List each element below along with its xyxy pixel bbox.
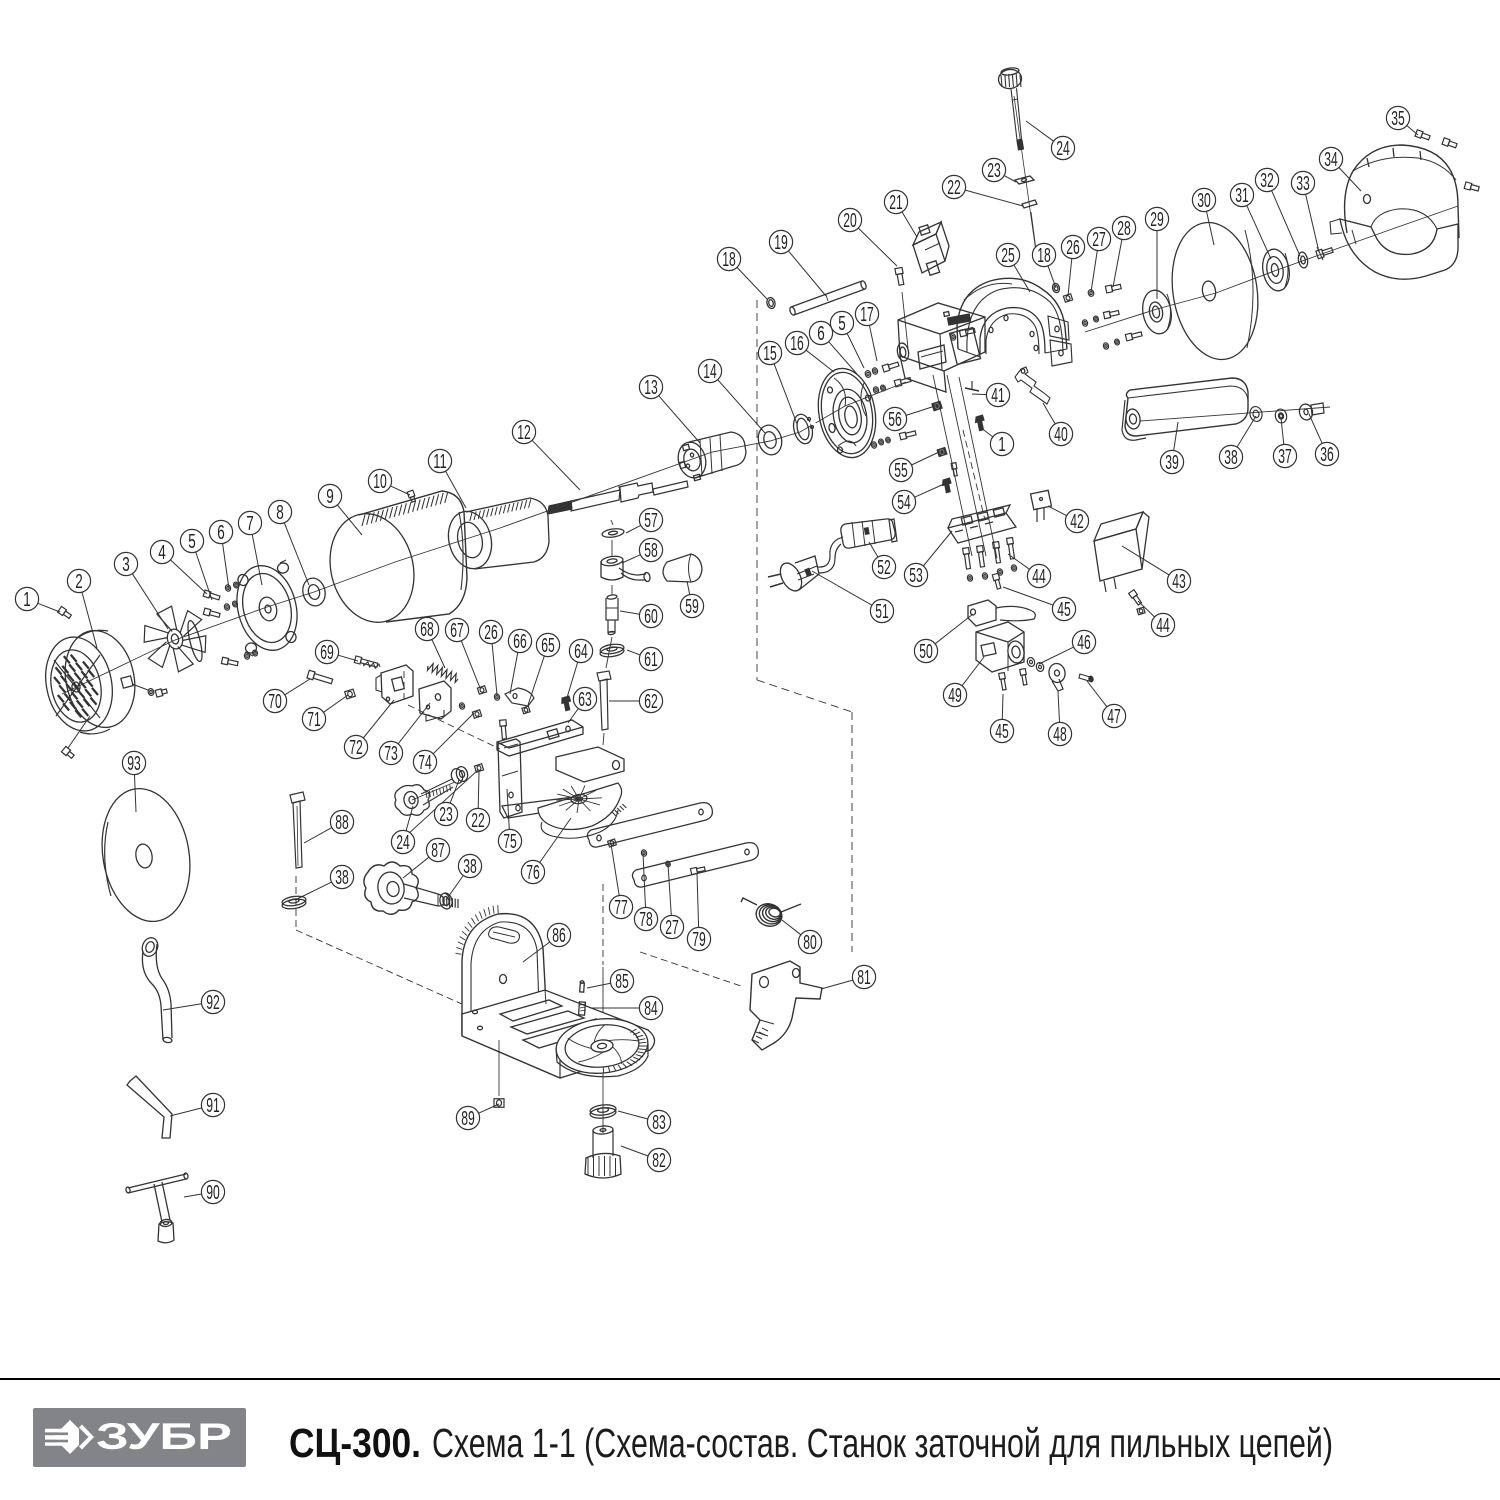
svg-text:89: 89 (461, 1108, 475, 1130)
svg-text:45: 45 (1057, 599, 1071, 621)
svg-text:37: 37 (1278, 446, 1292, 468)
svg-text:43: 43 (1172, 571, 1186, 593)
svg-text:90: 90 (206, 1182, 220, 1204)
svg-text:21: 21 (889, 192, 903, 214)
svg-text:36: 36 (1320, 444, 1334, 466)
svg-text:88: 88 (335, 812, 349, 834)
svg-text:СЦ-300.: СЦ-300. (289, 1420, 421, 1466)
svg-text:26: 26 (1066, 237, 1080, 259)
svg-text:23: 23 (987, 160, 1001, 182)
svg-text:11: 11 (433, 451, 447, 473)
svg-text:24: 24 (396, 832, 410, 854)
svg-text:93: 93 (127, 753, 141, 775)
svg-text:48: 48 (1053, 724, 1067, 746)
svg-text:58: 58 (644, 540, 658, 562)
svg-text:85: 85 (615, 971, 629, 993)
svg-text:64: 64 (574, 641, 588, 663)
svg-text:44: 44 (1032, 566, 1046, 588)
svg-text:5: 5 (188, 531, 196, 553)
svg-text:69: 69 (320, 642, 334, 664)
svg-text:6: 6 (217, 522, 225, 544)
svg-text:3: 3 (122, 554, 130, 576)
svg-text:70: 70 (268, 691, 282, 713)
svg-text:38: 38 (335, 867, 349, 889)
svg-text:26: 26 (484, 622, 498, 644)
svg-text:63: 63 (578, 689, 592, 711)
svg-text:5: 5 (838, 313, 846, 335)
svg-text:62: 62 (644, 691, 658, 713)
svg-text:2: 2 (75, 571, 83, 593)
svg-text:ЗУБР: ЗУБР (96, 1416, 232, 1457)
svg-text:91: 91 (206, 1095, 220, 1117)
svg-text:4: 4 (158, 542, 166, 564)
svg-text:65: 65 (541, 635, 555, 657)
svg-text:49: 49 (948, 685, 962, 707)
svg-text:13: 13 (644, 377, 658, 399)
svg-text:18: 18 (722, 249, 736, 271)
svg-text:24: 24 (1056, 138, 1070, 160)
svg-text:31: 31 (1235, 185, 1249, 207)
svg-text:12: 12 (517, 422, 531, 444)
svg-text:83: 83 (652, 1112, 666, 1134)
svg-text:32: 32 (1260, 170, 1274, 192)
svg-text:66: 66 (513, 631, 527, 653)
svg-text:14: 14 (703, 361, 717, 383)
svg-text:15: 15 (763, 343, 777, 365)
svg-text:1: 1 (998, 434, 1006, 456)
svg-text:17: 17 (860, 304, 874, 326)
svg-text:33: 33 (1296, 173, 1310, 195)
svg-text:68: 68 (420, 619, 434, 641)
svg-text:56: 56 (888, 409, 902, 431)
svg-text:67: 67 (450, 620, 464, 642)
svg-text:40: 40 (1054, 424, 1068, 446)
svg-text:42: 42 (1070, 511, 1084, 533)
svg-text:28: 28 (1117, 218, 1131, 240)
svg-text:Схема 1-1 (Схема-состав. Стано: Схема 1-1 (Схема-состав. Станок заточной… (432, 1420, 1333, 1466)
svg-text:1: 1 (23, 589, 31, 611)
svg-text:54: 54 (897, 492, 911, 514)
svg-text:16: 16 (790, 333, 804, 355)
svg-text:86: 86 (552, 925, 566, 947)
svg-text:9: 9 (326, 486, 334, 508)
svg-text:22: 22 (947, 177, 961, 199)
svg-text:52: 52 (877, 557, 891, 579)
svg-text:20: 20 (843, 210, 857, 232)
svg-text:57: 57 (644, 510, 658, 532)
svg-text:79: 79 (692, 929, 706, 951)
svg-text:41: 41 (991, 385, 1005, 407)
svg-text:59: 59 (685, 596, 699, 618)
svg-text:46: 46 (1077, 632, 1091, 654)
svg-text:74: 74 (418, 752, 432, 774)
svg-text:80: 80 (803, 932, 817, 954)
svg-text:87: 87 (431, 840, 445, 862)
svg-text:19: 19 (774, 232, 788, 254)
svg-text:25: 25 (1001, 245, 1015, 267)
svg-text:30: 30 (1197, 190, 1211, 212)
svg-text:81: 81 (857, 967, 871, 989)
svg-text:60: 60 (644, 606, 658, 628)
svg-text:50: 50 (919, 641, 933, 663)
svg-text:22: 22 (471, 810, 485, 832)
svg-text:61: 61 (644, 649, 658, 671)
svg-text:8: 8 (276, 502, 284, 524)
svg-text:23: 23 (439, 804, 453, 826)
svg-text:18: 18 (1037, 245, 1051, 267)
svg-text:45: 45 (995, 721, 1009, 743)
svg-text:75: 75 (503, 831, 517, 853)
svg-text:82: 82 (652, 1150, 666, 1172)
svg-text:39: 39 (1165, 452, 1179, 474)
svg-text:78: 78 (639, 909, 653, 931)
svg-text:6: 6 (817, 323, 825, 345)
svg-text:72: 72 (349, 737, 363, 759)
svg-text:7: 7 (246, 513, 254, 535)
svg-text:38: 38 (463, 856, 477, 878)
svg-text:53: 53 (909, 565, 923, 587)
svg-text:51: 51 (875, 601, 889, 623)
svg-text:27: 27 (1092, 229, 1106, 251)
svg-text:27: 27 (665, 917, 679, 939)
svg-text:84: 84 (644, 998, 658, 1020)
svg-text:77: 77 (614, 897, 628, 919)
svg-text:29: 29 (1150, 209, 1164, 231)
svg-text:44: 44 (1156, 615, 1170, 637)
svg-text:34: 34 (1324, 149, 1338, 171)
svg-text:76: 76 (526, 862, 540, 884)
svg-text:71: 71 (307, 709, 321, 731)
svg-text:38: 38 (1224, 447, 1238, 469)
svg-text:47: 47 (1107, 706, 1121, 728)
svg-text:35: 35 (1391, 108, 1405, 130)
svg-text:10: 10 (373, 471, 387, 493)
svg-text:73: 73 (384, 743, 398, 765)
svg-text:55: 55 (894, 460, 908, 482)
svg-text:92: 92 (206, 992, 220, 1014)
